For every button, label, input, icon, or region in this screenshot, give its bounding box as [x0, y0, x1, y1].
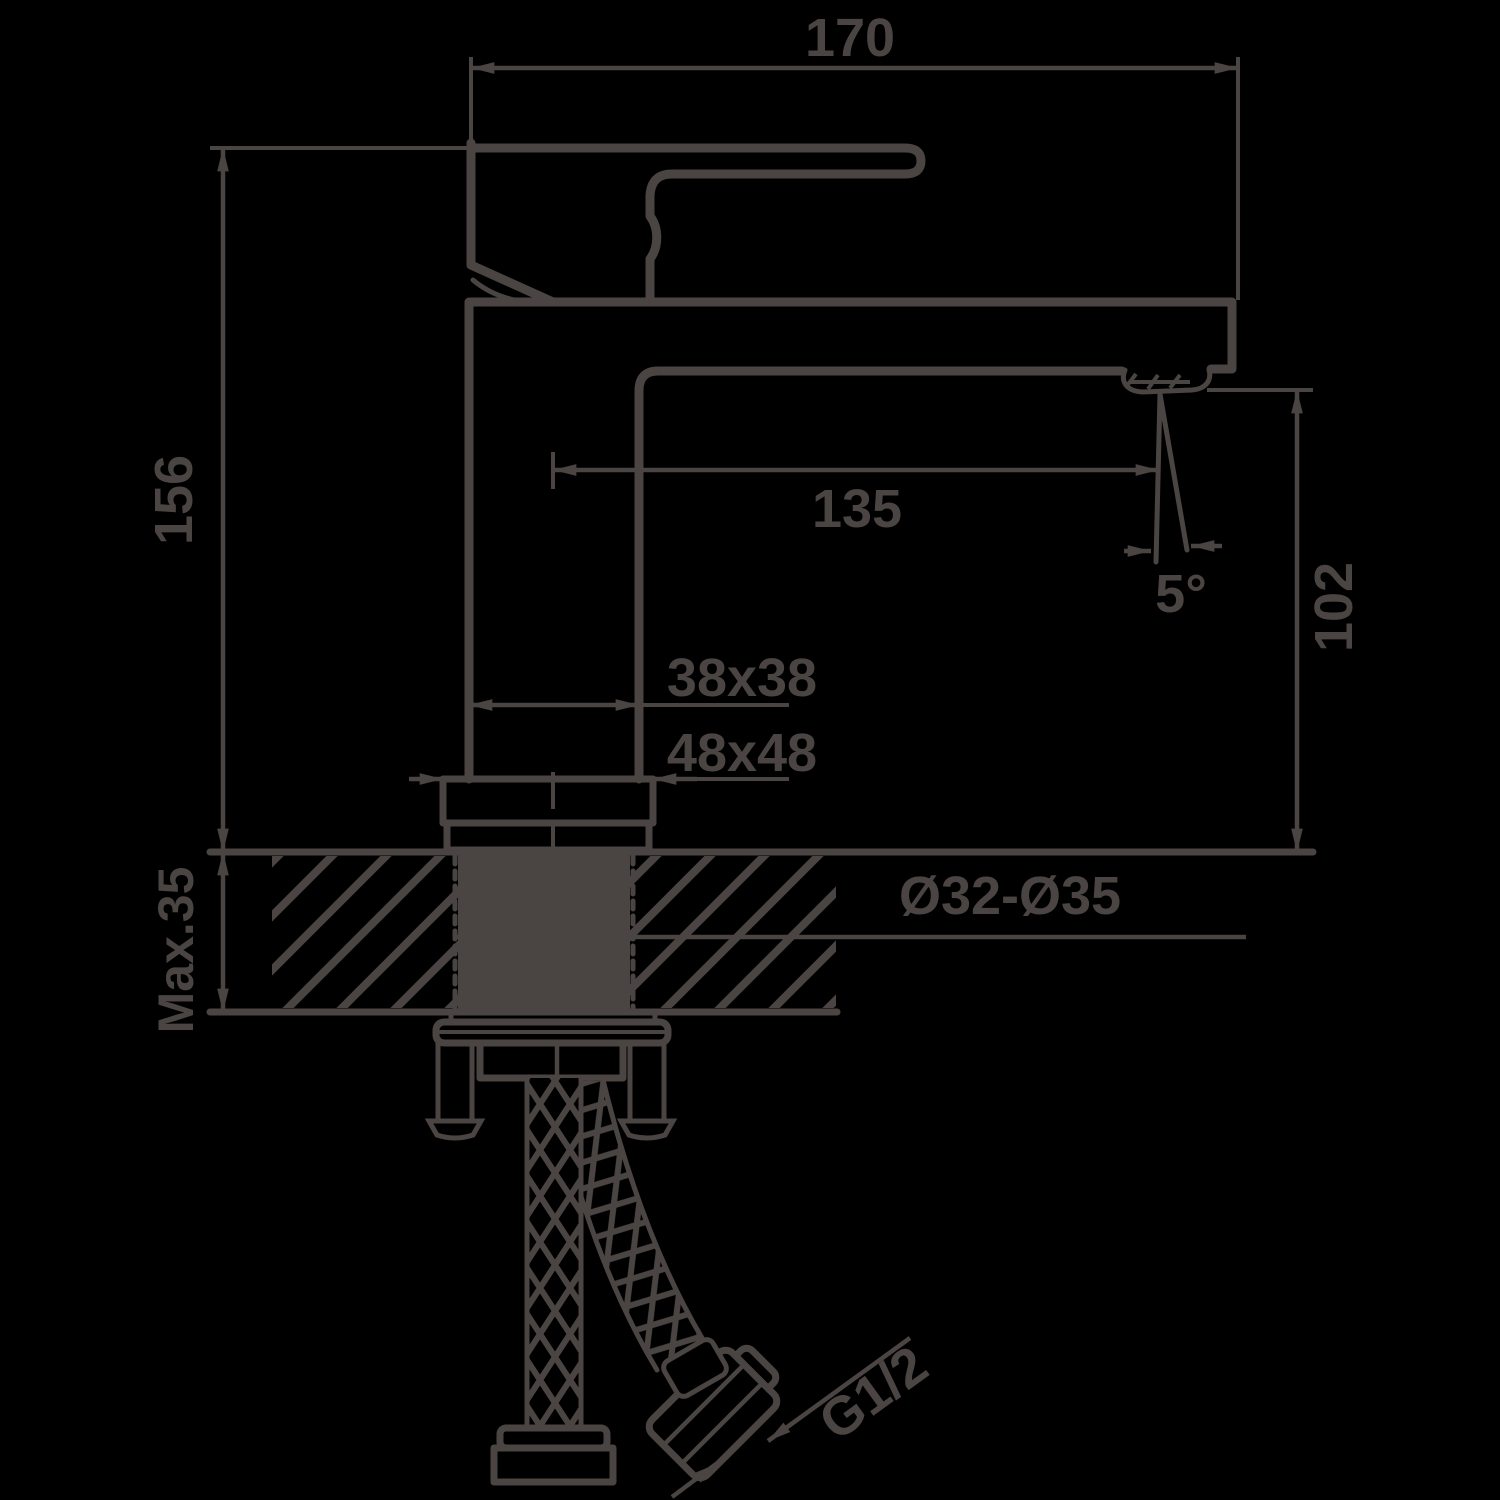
countertop-section [210, 852, 1313, 1012]
stud-right [621, 1043, 673, 1138]
counter-hatch-left [272, 856, 458, 1008]
dimension-102: 102 [1207, 390, 1364, 852]
base-escutcheon [443, 779, 653, 850]
dimension-max35: Max.35 [148, 852, 223, 1033]
dim-label-5deg: 5° [1155, 564, 1207, 624]
dim-label-38x38: 38x38 [667, 648, 817, 708]
body-underside [639, 371, 1122, 779]
dim-label-g12: G1/2 [808, 1335, 938, 1452]
spout-angle-lines [1156, 394, 1187, 562]
dim-label-hole: Ø32-Ø35 [899, 866, 1121, 926]
faucet-dimension-diagram: 170 156 Max.35 135 5° 102 [0, 0, 1500, 1500]
handle-front-face [471, 143, 553, 302]
dimensions: 170 156 Max.35 135 5° 102 [144, 8, 1364, 1497]
counter-hatch-right [630, 856, 836, 1008]
mounting-hardware [429, 1012, 781, 1482]
lever-handle [471, 148, 921, 302]
dim-label-48x48: 48x48 [667, 723, 817, 783]
stud-left [429, 1043, 481, 1138]
hose-end-nut [494, 1448, 613, 1482]
mounting-nut [480, 1043, 623, 1078]
dim-label-max35: Max.35 [148, 867, 204, 1034]
dimension-5deg: 5° [1124, 546, 1222, 624]
dim-label-135: 135 [812, 479, 902, 539]
dim-label-170: 170 [805, 8, 895, 68]
body-top [471, 302, 1232, 369]
dim-label-156: 156 [144, 455, 204, 545]
technical-drawing-canvas: 170 156 Max.35 135 5° 102 [0, 0, 1500, 1500]
dimension-135: 135 [553, 470, 1159, 539]
dimension-170: 170 [471, 8, 1238, 300]
dimension-156: 156 [144, 148, 471, 852]
aerator [1123, 370, 1209, 392]
threaded-shank [458, 852, 630, 1012]
dim-label-102: 102 [1304, 562, 1364, 652]
